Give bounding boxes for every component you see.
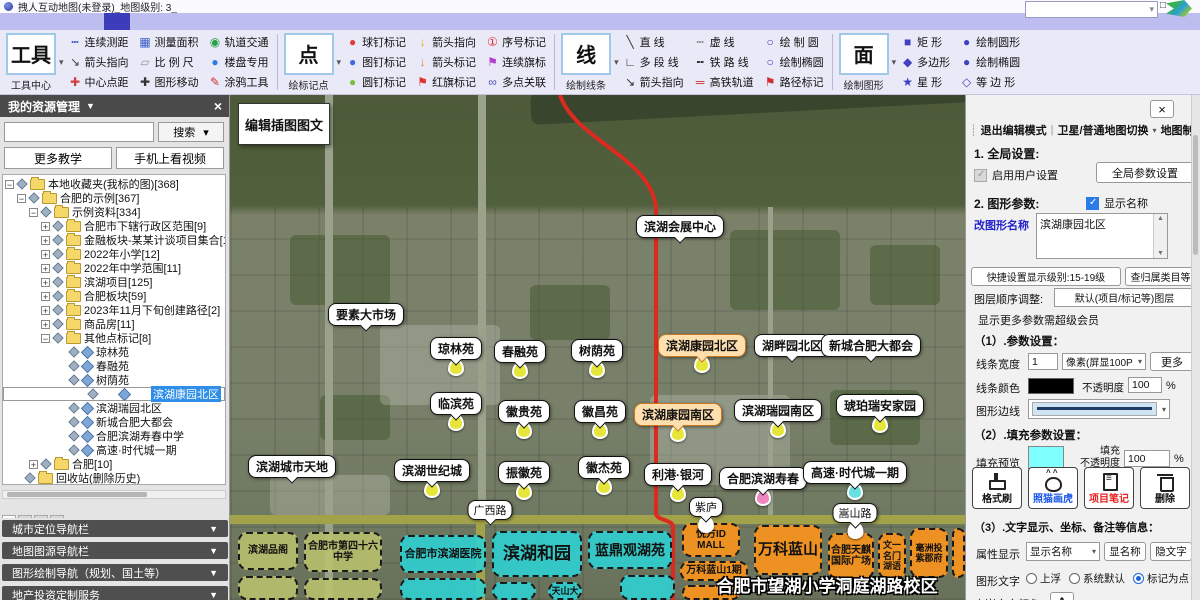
tree-item[interactable]: 琼林苑 [3,345,225,359]
map-label-text: 滨湖城市天地 [256,460,328,474]
tree-item[interactable]: 春融苑 [3,359,225,373]
toolbar-item-label: 球钉标记 [362,34,406,50]
node-icon [24,472,35,483]
chevron-down-icon[interactable]: ▾ [337,57,342,68]
toolbar-item-label: 箭头指向 [85,54,129,70]
map-zone[interactable] [620,575,675,600]
menu-item[interactable] [130,13,156,30]
map-label[interactable]: 新城合肥大都会 [821,334,921,357]
map-label-text: 滨湖瑞园南区 [742,404,814,418]
map-label[interactable]: 湖畔园北区 [754,334,830,357]
accordion-header[interactable]: 图形绘制导航（规划、国土等） ▼ [2,564,228,581]
toolbar-item-icon: ┅ [69,36,82,49]
toolbar-item-label: 箭头指向 [432,34,476,50]
toolbar-item[interactable]: ↓箭头标记 [412,52,480,72]
toolbar-item-icon: ∞ [486,76,499,89]
map-zone[interactable]: 滨湖和园 [492,531,582,577]
tree-toggle[interactable]: − [17,194,26,203]
toolbar-item[interactable]: ★星 形 [897,72,954,92]
map-label[interactable]: 广西路 [468,500,513,520]
sidebar-tab[interactable] [18,515,32,518]
toolbar-item-icon: ■ [901,36,914,49]
enable-user-settings-checkbox[interactable] [974,169,987,182]
node-icon [52,234,63,245]
panel-tool-label: 项目笔记 [1089,490,1129,505]
toolbar-separator [554,34,555,90]
fill-opacity-input[interactable]: 100 [1124,450,1170,467]
menu-item[interactable] [182,13,208,30]
menu-item[interactable] [78,13,104,30]
map-marker[interactable] [694,356,710,373]
accordion-header[interactable]: 地图图源导航栏 ▼ [2,542,228,559]
edge-style-select[interactable]: ▾ [1028,399,1170,419]
rename-shape-label: 改图形名称 [974,217,1029,233]
attr-display-select[interactable]: 显示名称 ▾ [1026,542,1100,561]
node-icon [68,360,79,371]
tree-toggle[interactable]: + [41,222,50,231]
map-label[interactable]: 琼林苑 [430,337,482,360]
tree-toggle[interactable]: − [29,208,38,217]
line-color-swatch[interactable] [1028,378,1074,394]
map-label-text: 临滨苑 [438,397,474,411]
toolbar-item-icon: ↘ [624,76,637,89]
map-label[interactable]: 高速·时代城一期 [803,461,907,484]
sidebar-tab[interactable] [2,515,16,518]
more-teaching-button[interactable]: 更多教学 [4,147,112,169]
folder-icon [66,305,81,316]
map-zone-label: 滨湖品阁 [248,545,288,557]
map-marker[interactable] [448,359,464,376]
radio-label: 标记为点 [1147,571,1189,586]
chevron-down-icon[interactable]: ▾ [59,57,64,68]
map-marker[interactable] [512,362,528,379]
menu-item[interactable] [26,13,52,30]
toolbar-item[interactable]: ●图钉标记 [342,52,410,72]
tree-item[interactable]: − 合肥的示例[367] [3,191,225,205]
tree-item[interactable]: + 2023年11月下旬创建路径[2] [3,303,225,317]
toolbar-item[interactable]: ⚑红旗标记 [412,72,480,92]
marker-leaf-icon [81,373,94,386]
close-icon[interactable]: × [1150,100,1174,118]
map-zone-label: 天山大 [551,586,578,596]
radio-option[interactable]: 标记为点 [1133,571,1189,586]
map-label[interactable]: 利港·银河 [644,463,712,486]
radio-option[interactable]: 上浮 [1026,571,1061,586]
shape-name-input[interactable]: 滨湖康园北区 [1037,214,1153,258]
map-label-text: 新城合肥大都会 [829,339,913,353]
folder-icon [66,291,81,302]
menu-item[interactable] [104,13,130,30]
tree-toggle[interactable]: − [41,334,50,343]
tool-group-lines: 线 绘制线条 ▾ ╲直 线∟多 段 线↘箭头指向┄虚 线╍铁 路 线═高铁轨道○… [559,31,828,93]
toolbar-item[interactable]: ↓箭头指向 [412,32,480,52]
panel-tool-label: 删除 [1155,490,1175,505]
map-marker[interactable] [516,483,532,500]
map-label[interactable]: 滨湖康园北区 [658,334,746,357]
shape-big-label: 面 [854,39,874,68]
toolbar-item[interactable]: ●绘制椭圆 [956,52,1024,72]
radio-icon [1026,573,1037,584]
tree-item[interactable]: + 2022年小学[12] [3,247,225,261]
toolbar-item[interactable]: ╲直 线 [620,32,688,52]
sidebar-tabs [0,502,230,518]
line-width-unit-select[interactable]: 像素(屏显100P ▾ [1062,353,1146,370]
tree-item[interactable]: − 其他点标记[8] [3,331,225,345]
triangle-down-icon: ▼ [86,101,95,111]
toolbar-item[interactable]: ═高铁轨道 [690,72,758,92]
toolbar-item[interactable]: ◉轨道交通 [205,32,273,52]
node-icon [52,318,63,329]
chevron-down-icon: ▾ [203,126,209,139]
shape-caption: 绘制图形 [844,77,884,92]
layer-order-select[interactable]: 默认(项目/标记等)图层 [1054,288,1195,307]
map-label[interactable]: 徽昌苑 [574,400,626,423]
tree-item[interactable]: + 金融板块-某某计谈项目集合[10] [3,233,225,247]
chevron-down-icon[interactable]: ▾ [1153,126,1157,135]
toolbar-item[interactable]: ●圆钉标记 [342,72,410,92]
global-params-button[interactable]: 全局参数设置 [1096,162,1194,183]
divider: | [1051,124,1054,136]
sidebar-search-button[interactable]: 搜索 ▾ [158,122,224,142]
toolbar-item-label: 路径标记 [780,74,824,90]
tree-item[interactable]: + 合肥板块[59] [3,289,225,303]
shape-text-radios: 上浮 系统默认 标记为点 [1026,571,1197,586]
panel-tool-button[interactable]: 项目笔记 [1084,467,1134,509]
toolbar-item[interactable]: ○绘制椭圆 [760,52,828,72]
toolbar-item[interactable]: ○绘 制 圆 [760,32,828,52]
toolbar-item[interactable]: ①序号标记 [482,32,550,52]
toolbar-item-icon: ✎ [209,76,222,89]
tree-item[interactable]: 合肥滨湖寿春中学 [3,429,225,443]
toolbar-item-label: 直 线 [640,34,665,50]
map-label[interactable]: 树荫苑 [571,339,623,362]
map-label-text: 树荫苑 [579,344,615,358]
tree-toggle[interactable]: + [41,320,50,329]
tree-item[interactable]: 滨湖康园北区 [3,387,225,401]
tree-toggle[interactable]: + [41,292,50,301]
toolbar-item-icon: ★ [901,76,914,89]
chevron-down-icon: ▾ [1149,4,1154,15]
unit-value: 像素(屏显100P [1066,354,1133,369]
toolbar-item[interactable]: ↘箭头指向 [620,72,688,92]
toolbar-item-icon: ◉ [209,36,222,49]
map-marker[interactable] [847,522,863,539]
node-icon [68,430,79,441]
search-button-label: 搜索 [173,124,195,140]
tree-horizontal-scrollbar[interactable] [2,490,226,499]
map-label-text: 徽杰苑 [586,461,622,475]
radio-option[interactable]: 系统默认 [1069,571,1125,586]
line-caption: 绘制线条 [566,77,606,92]
map-label[interactable]: 琥珀瑞安家园 [836,394,924,417]
toolbar-item-label: 绘 制 圆 [780,34,819,50]
toolbar-item[interactable]: ◇等 边 形 [956,72,1024,92]
tree-toggle[interactable]: + [41,264,50,273]
toolbar-item[interactable]: ∟多 段 线 [620,52,688,72]
tree-item[interactable]: 新城合肥大都会 [3,415,225,429]
map-marker[interactable] [872,416,888,433]
map-canvas[interactable]: 滨湖品阁合肥市第四十六中学合肥市滨湖医院滨湖和园蓝鼎观湖苑天山大悦方ID MAL… [230,95,965,600]
app-window: 拽人互动地图(未登录)_地图级别: 3_ — □ ▾ 工具 工具中心 ▾ ┅连续… [0,0,1200,600]
map-marker[interactable] [670,485,686,502]
toolbar-item[interactable]: ↘箭头指向 [65,52,133,72]
category-button[interactable]: 查归属类目等 [1125,267,1196,286]
tree-item[interactable]: + 商品房[11] [3,317,225,331]
map-label-text: 振徽苑 [506,466,542,480]
map-label[interactable]: 滨湖会展中心 [636,215,724,238]
tree-item[interactable]: 回收站(删除历史) [3,471,225,485]
quick-search-combobox[interactable]: ▾ [1025,1,1158,18]
toolbar-item[interactable]: ∞多点关联 [482,72,550,92]
toolbar-item[interactable]: ⚑路径标记 [760,72,828,92]
point-caption: 绘标记点 [289,77,329,92]
accordion-header[interactable]: 地产投资定制服务 ▼ [2,586,228,600]
map-label[interactable]: 滨湖城市天地 [248,455,336,478]
toolbar-item-icon: ○ [764,36,777,49]
scroll-down-icon[interactable]: ▼ [1157,250,1164,257]
toolbar-item[interactable]: ✚图形移动 [135,72,203,92]
map-label[interactable]: 滨湖瑞园南区 [734,399,822,422]
map-zone-label: 合肥市第四十六中学 [307,541,379,564]
map-label-text: 紫庐 [695,502,717,514]
show-name-checkbox[interactable] [1086,197,1099,210]
menu-item[interactable] [156,13,182,30]
tree-toggle[interactable]: + [41,236,50,245]
show-name-button[interactable]: 显名称 [1104,542,1146,561]
tree-item[interactable]: + 合肥[10] [3,457,225,471]
quick-level-button[interactable]: 快捷设置显示级别:15-19级 [971,267,1121,286]
map-marker[interactable] [670,425,686,442]
point-big-button[interactable]: 点 [284,33,334,75]
toolbar-item[interactable]: ┅连续测距 [65,32,133,52]
chevron-down-icon[interactable]: ▾ [892,57,897,68]
map-label[interactable]: 滨湖世纪城 [394,459,470,482]
accordion-label: 城市定位导航栏 [12,521,89,537]
satellite-toggle-button[interactable]: 卫星/普通地图切换 [1057,122,1148,138]
toolbar-item[interactable]: ■矩 形 [897,32,954,52]
menu-item[interactable] [208,13,234,30]
edge-style-preview [1032,402,1157,416]
map-zone-label: 滨湖和园 [503,544,571,564]
tree-toggle[interactable]: + [41,278,50,287]
sidebar-tab[interactable] [50,515,64,518]
resource-tree: − 本地收藏夹(我标的图)[368] − 合肥的示例[367] − [2,174,226,485]
folder-icon [38,473,53,484]
map-zone[interactable]: 合肥市滨湖医院 [400,535,486,573]
toolbar-item[interactable]: ✎涂鸦工具 [205,72,273,92]
map-marker[interactable] [755,489,771,506]
edit-insert-graphic-box[interactable]: 编辑插图图文 [238,103,330,145]
toolbar-item-label: 矩 形 [917,34,942,50]
sidebar-title: 我的资源管理 [8,98,80,115]
tree-item[interactable]: 树荫苑 [3,373,225,387]
chevron-down-icon: ▾ [1162,405,1166,414]
sidebar-tab[interactable] [34,515,48,518]
scrollbar-thumb[interactable] [1193,135,1198,255]
toolbar-item-label: 虚 线 [710,34,735,50]
toolbar-item[interactable]: ✚中心点距 [65,72,133,92]
toolbar-item-label: 连续测距 [85,34,129,50]
tree-item[interactable]: + 合肥市下辖行政区范围[9] [3,219,225,233]
toolbar-item-label: 图钉标记 [362,54,406,70]
toolbar-item-icon: ◇ [960,76,973,89]
accordion-header[interactable]: 城市定位导航栏 ▼ [2,520,228,537]
toolbar-item[interactable]: ▦测量面积 [135,32,203,52]
toolbar-item-label: 测量面积 [155,34,199,50]
tree-item[interactable]: − 本地收藏夹(我标的图)[368] [3,177,225,191]
map-zone[interactable]: 天山大 [548,582,582,600]
folder-icon [66,249,81,260]
map-label[interactable]: 徽杰苑 [578,456,630,479]
map-marker[interactable] [698,516,714,533]
panel-tool-icon [1042,471,1064,489]
toolbar-item-icon: ↘ [69,56,82,69]
map-zone[interactable] [952,528,965,578]
toolbar-item[interactable]: ▱比 例 尺 [135,52,203,72]
tree-item[interactable]: 滨湖瑞园北区 [3,401,225,415]
tree-toggle[interactable]: + [41,306,50,315]
tool-group-shapes: 面 绘制图形 ▾ ■矩 形◆多边形★星 形●绘制圆形●绘制椭圆◇等 边 形 [837,31,1025,93]
show-name-label: 显示名称 [1104,195,1148,211]
panel-tool-icon [1098,471,1120,489]
hide-text-button[interactable]: 隐文字 [1150,542,1192,561]
map-zone[interactable]: 万科蓝山 [754,525,822,575]
shape-name-field: 滨湖康园北区 ▲ ▼ [1036,213,1168,259]
map-label[interactable]: 要素大市场 [328,303,404,326]
map-label-text: 徽贵苑 [506,405,542,419]
toolbar-item-icon: ○ [764,56,777,69]
menubar [0,13,1200,30]
map-marker[interactable] [448,414,464,431]
map-zone[interactable] [238,576,298,600]
ribbon-toolbar: 工具 工具中心 ▾ ┅连续测距↘箭头指向✚中心点距▦测量面积▱比 例 尺✚图形移… [0,30,1200,95]
toolbar-item[interactable]: ◆多边形 [897,52,954,72]
toolbar-separator [277,34,278,90]
toolbar-item[interactable]: ⚑连续旗标 [482,52,550,72]
map-marker[interactable] [424,481,440,498]
embed-text-color-button[interactable]: A [1050,592,1074,600]
toolbar-item[interactable]: ●楼盘专用 [205,52,273,72]
attr-display-value: 显示名称 [1030,544,1072,559]
map-label[interactable]: 嵩山路 [833,503,878,523]
sidebar-search-input[interactable] [4,122,154,142]
map-label[interactable]: 春融苑 [494,340,546,363]
map-marker[interactable] [516,422,532,439]
toolbar-item-label: 绘制椭圆 [780,54,824,70]
chevron-down-icon[interactable]: ▾ [614,57,619,68]
map-marker[interactable] [847,483,863,500]
radio-label: 系统默认 [1083,571,1125,586]
map-zone[interactable]: 蓝鼎观湖苑 [588,531,672,569]
shape-big-button[interactable]: 面 [839,33,889,75]
toolbar-item-label: 高铁轨道 [710,74,754,90]
map-label[interactable]: 徽贵苑 [498,400,550,423]
map-label-text: 高速·时代城一期 [811,466,899,480]
toolbar-item[interactable]: ┄虚 线 [690,32,758,52]
map-marker[interactable] [589,361,605,378]
tree-item-label: 树荫苑 [96,372,129,388]
panel-tool-button[interactable]: 照猫画虎 [1028,467,1078,509]
tree-item[interactable]: 高速·时代城一期 [3,443,225,457]
panel-tool-button[interactable]: 格式刷 [972,467,1022,509]
shape-text-label: 图形文字 [976,573,1020,589]
tree-item[interactable]: + 滨湖项目[125] [3,275,225,289]
tree-toggle[interactable]: + [41,250,50,259]
menu-item[interactable] [52,13,78,30]
folder-icon [66,221,81,232]
map-label[interactable]: 滨湖康园南区 [634,403,722,426]
menu-item[interactable] [234,13,260,30]
opacity-input[interactable]: 100 [1128,377,1162,393]
attr-display-label: 属性显示 [976,546,1020,562]
textarea-scrollbar[interactable]: ▲ ▼ [1153,214,1167,258]
map-zone[interactable] [400,578,486,600]
map-label[interactable]: 合肥滨湖寿春 [719,467,807,490]
tree-toggle[interactable]: + [29,460,38,469]
toolbar-item[interactable]: ●球钉标记 [342,32,410,52]
triangle-down-icon: ▼ [209,568,218,578]
tree-item[interactable]: − 示例资料[334] [3,205,225,219]
map-zone[interactable]: 毫洲投紫郡府 [910,528,948,578]
scroll-up-icon[interactable]: ▲ [1157,215,1164,222]
map-label-text: 滨湖会展中心 [644,220,716,234]
radio-icon [1069,573,1080,584]
sidebar-header[interactable]: 我的资源管理 ▼ × [0,95,230,117]
menu-item[interactable] [260,13,286,30]
tree-toggle[interactable]: − [5,180,14,189]
folder-icon [30,179,45,190]
toolbar-item-label: 箭头指向 [640,74,684,90]
embed-text-color-label: 内嵌文字颜色 [974,596,1040,600]
section-text-display: （3）.文字显示、坐标、备注等信息： [974,519,1159,535]
tools-caption: 工具中心 [11,77,51,92]
exit-edit-mode-button[interactable]: 退出编辑模式 [981,122,1047,138]
toolbar-item[interactable]: ╍铁 路 线 [690,52,758,72]
line-width-input[interactable]: 1 [1028,353,1058,370]
toolbar-item[interactable]: ●绘制圆形 [956,32,1024,52]
line-big-button[interactable]: 线 [561,33,611,75]
map-marker[interactable] [770,421,786,438]
map-label-text: 嵩山路 [839,508,872,520]
panel-scrollbar[interactable] [1191,95,1200,600]
menu-item[interactable] [0,13,26,30]
folder-icon [54,207,69,218]
map-label[interactable]: 振徽苑 [498,461,550,484]
panel-tool-button[interactable]: 删除 [1140,467,1190,509]
map-zone[interactable]: 合肥市第四十六中学 [304,532,382,572]
tools-big-label: 工具 [11,39,51,68]
percent-sign: % [1174,453,1184,465]
more-button[interactable]: 更多 [1150,352,1194,371]
map-label[interactable]: 紫庐 [689,497,723,517]
chevron-down-icon: ▾ [1138,357,1142,366]
tools-big-button[interactable]: 工具 [6,33,56,75]
toolbar-item-label: 比 例 尺 [155,54,194,70]
scrollbar-thumb[interactable] [7,492,147,497]
map-zone[interactable] [304,578,382,600]
node-icon [52,220,63,231]
map-zone[interactable]: 滨湖品阁 [238,532,298,570]
map-zone[interactable] [492,582,536,600]
phone-video-button[interactable]: 手机上看视频 [116,147,224,169]
close-icon[interactable]: × [214,98,222,114]
tree-item[interactable]: + 2022年中学范围[11] [3,261,225,275]
point-big-label: 点 [299,39,319,68]
marker-leaf-icon [81,443,94,456]
map-label[interactable]: 临滨苑 [430,392,482,415]
map-marker[interactable] [592,422,608,439]
map-marker[interactable] [596,478,612,495]
